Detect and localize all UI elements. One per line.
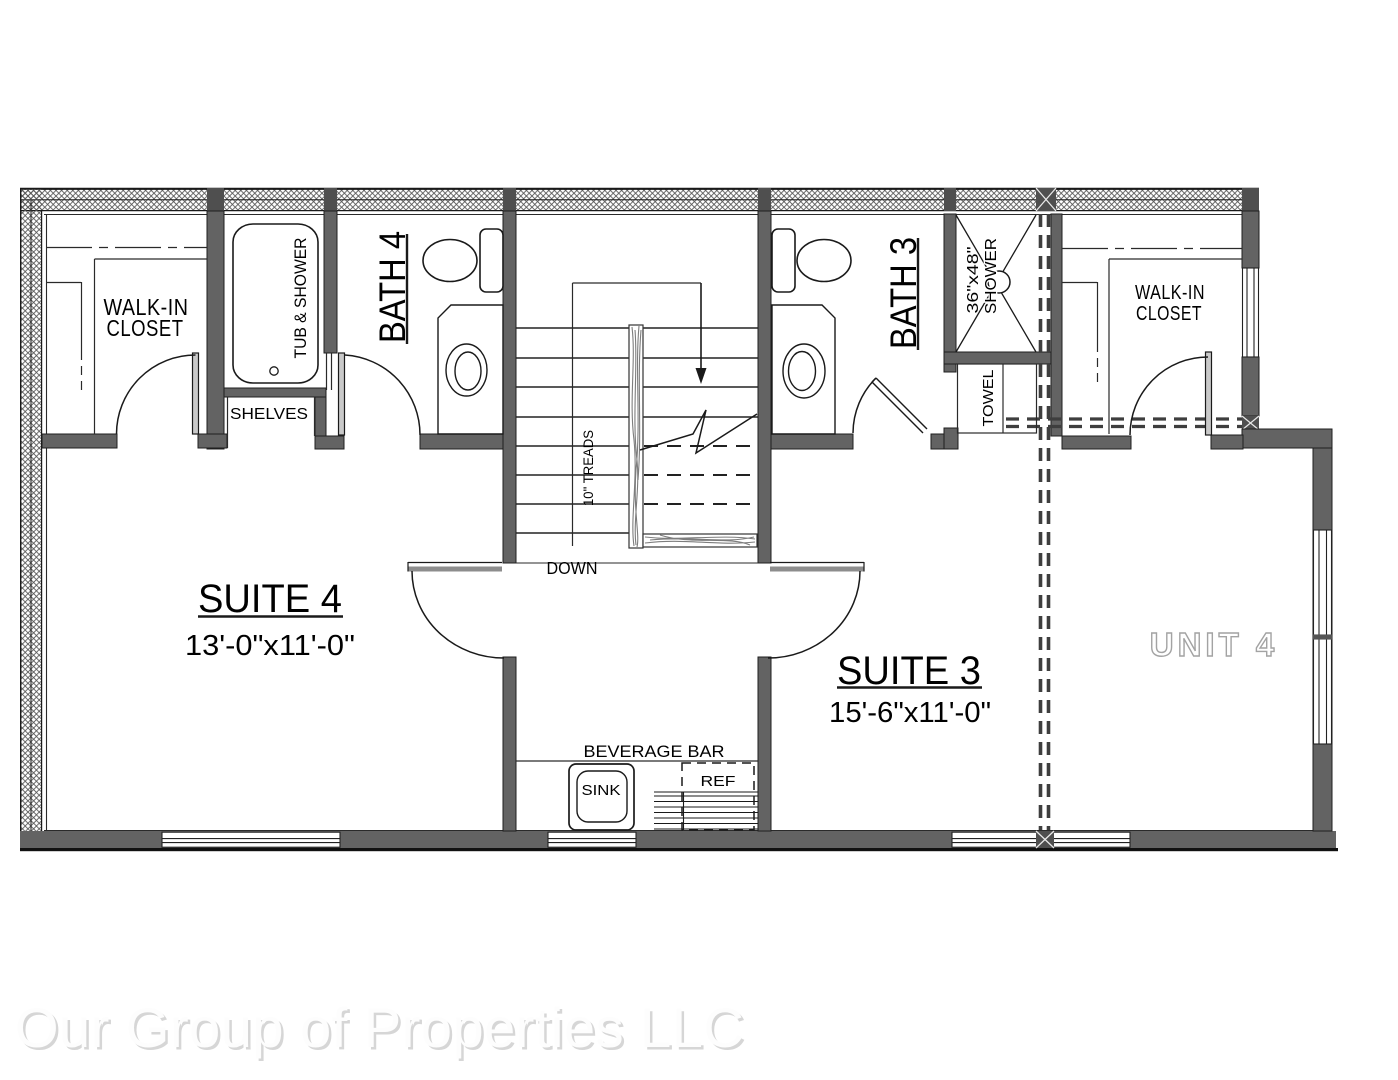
svg-text:TOWEL: TOWEL (980, 370, 997, 427)
svg-text:TUB & SHOWER: TUB & SHOWER (291, 238, 310, 359)
svg-text:10" TREADS: 10" TREADS (581, 430, 596, 506)
svg-text:15'-6"x11'-0": 15'-6"x11'-0" (829, 697, 991, 729)
svg-text:13'-0"x11'-0": 13'-0"x11'-0" (185, 630, 355, 662)
svg-text:36"x48": 36"x48" (965, 247, 982, 314)
svg-text:Our Group of Properties LLC: Our Group of Properties LLC (15, 996, 744, 1059)
svg-text:DOWN: DOWN (547, 558, 598, 578)
svg-text:SHOWER: SHOWER (983, 238, 1000, 314)
svg-text:SINK: SINK (582, 783, 621, 799)
svg-text:SUITE 4: SUITE 4 (198, 577, 342, 621)
svg-text:CLOSET: CLOSET (1136, 303, 1202, 325)
svg-text:SHELVES: SHELVES (230, 406, 308, 423)
svg-text:REF: REF (701, 774, 736, 790)
svg-text:CLOSET: CLOSET (107, 315, 184, 341)
svg-text:BEVERAGE BAR: BEVERAGE BAR (584, 743, 725, 761)
svg-text:UNIT 4: UNIT 4 (1150, 626, 1279, 663)
svg-text:WALK-IN: WALK-IN (1135, 282, 1205, 304)
